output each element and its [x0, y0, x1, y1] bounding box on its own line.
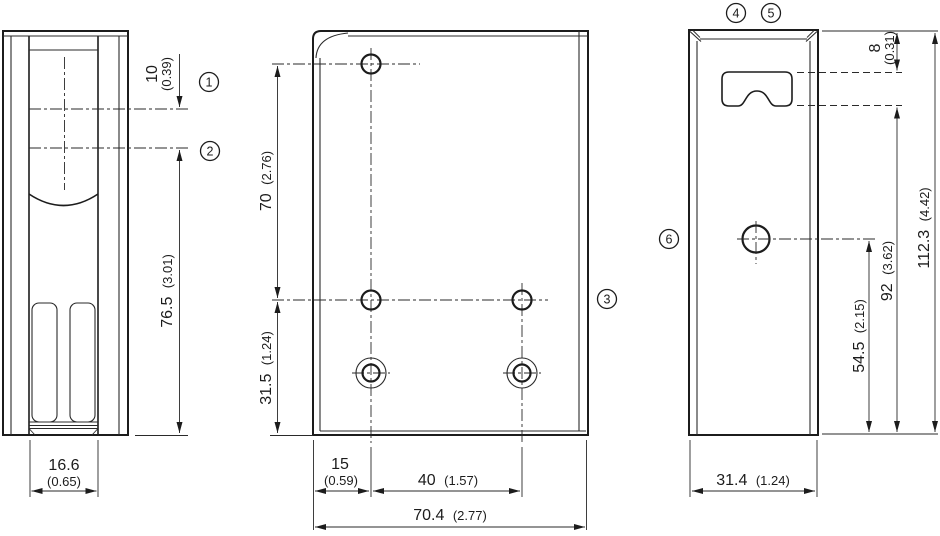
svg-text:112.3 (4.42): 112.3 (4.42) [916, 187, 933, 268]
callout-5: 5 [762, 4, 781, 23]
drawing-page: 10 (0.39) 76.5 (3.01) 16.6 (0.65) 1 2 [0, 0, 940, 531]
side-view-outline [3, 31, 128, 435]
svg-text:54.5 (2.15): 54.5 (2.15) [851, 299, 868, 373]
dim-profile-hole-bottom-in: (2.15) [852, 299, 867, 333]
dim-profile-hole-bottom-mm: 54.5 [851, 342, 868, 373]
svg-text:31.4 (1.24): 31.4 (1.24) [716, 472, 790, 489]
dim-front-spacing-h-in: (1.57) [444, 473, 478, 488]
dim-front-hole-bottom-mm: 31.5 [258, 374, 275, 405]
dim-front-spacing-v-mm: 70 [258, 193, 275, 211]
dim-profile-height: 112.3 (4.42) [916, 33, 935, 432]
callout-6: 6 [660, 230, 679, 249]
front-view: 70 (2.76) 31.5 (1.24) 15 (0.59) [258, 31, 617, 530]
dim-front-spacing-v-in: (2.76) [259, 151, 274, 185]
callout-2: 2 [201, 142, 220, 161]
callout-6-label: 6 [666, 233, 673, 247]
side-view-window-arc [29, 194, 98, 206]
dim-front-hole-spacing-v: 70 (2.76) [258, 66, 278, 298]
clamp-slot [722, 72, 792, 106]
svg-text:92 (3.62): 92 (3.62) [879, 241, 896, 301]
dim-side-height-mm: 76.5 [159, 297, 176, 328]
corner-radius-arc [316, 33, 348, 58]
callout-3-label: 3 [604, 293, 611, 307]
drawing-canvas: 10 (0.39) 76.5 (3.01) 16.6 (0.65) 1 2 [0, 0, 940, 531]
front-view-outline [313, 31, 588, 435]
dim-side-height: 76.5 (3.01) [135, 150, 188, 436]
dim-profile-slot-top: 8 (0.31) [867, 31, 897, 70]
callout-1: 1 [200, 73, 219, 92]
dim-profile-hole-bottom: 54.5 (2.15) [851, 241, 869, 432]
svg-text:31.5 (1.24): 31.5 (1.24) [258, 331, 275, 405]
callout-1-label: 1 [206, 76, 213, 90]
callout-2-label: 2 [207, 145, 214, 159]
side-view-base-lines [29, 422, 98, 435]
dim-profile-width-mm: 31.4 [716, 472, 747, 489]
callout-3: 3 [598, 290, 617, 309]
dim-profile-slot-bottom-mm: 92 [879, 283, 896, 301]
dim-profile-width: 31.4 (1.24) [690, 440, 817, 497]
dim-front-hole-left-in: (0.59) [324, 473, 358, 488]
dim-profile-height-mm: 112.3 [916, 230, 933, 269]
dim-side-height-in: (3.01) [160, 254, 175, 288]
callout-4-label: 4 [733, 7, 740, 21]
dim-front-spacing-h-mm: 40 [418, 472, 436, 489]
dim-side-width-mm: 16.6 [48, 457, 79, 474]
dim-side-width-in: (0.65) [47, 474, 81, 489]
dim-front-hole-left-mm: 15 [331, 456, 349, 473]
dim-front-hole-spacing-h: 40 (1.57) [373, 472, 520, 491]
dim-profile-height-in: (4.42) [917, 187, 932, 221]
dim-front-hole-bottom-in: (1.24) [259, 331, 274, 365]
dim-side-offset-in: (0.39) [159, 57, 174, 91]
dim-side-width: 16.6 (0.65) [30, 440, 98, 497]
callout-5-label: 5 [768, 7, 775, 21]
dim-side-offset: 10 (0.39) [144, 54, 180, 107]
side-view-slots [32, 303, 95, 422]
dim-front-width: 70.4 (2.77) [315, 507, 585, 527]
dim-front-hole-left: 15 (0.59) [315, 456, 369, 491]
dim-profile-slot-bottom: 92 (3.62) [879, 108, 897, 433]
side-view: 10 (0.39) 76.5 (3.01) 16.6 (0.65) 1 2 [3, 31, 220, 497]
dim-front-hole-bottom: 31.5 (1.24) [258, 302, 313, 436]
svg-text:76.5 (3.01): 76.5 (3.01) [159, 254, 176, 328]
dim-profile-slot-top-in: (0.31) [882, 31, 897, 65]
callout-4: 4 [727, 4, 746, 23]
svg-text:70.4 (2.77): 70.4 (2.77) [413, 507, 487, 524]
dim-front-width-in: (2.77) [453, 508, 487, 523]
svg-text:70 (2.76): 70 (2.76) [258, 151, 275, 211]
svg-text:40 (1.57): 40 (1.57) [418, 472, 478, 489]
dim-front-width-mm: 70.4 [413, 507, 444, 524]
dim-profile-slot-bottom-in: (3.62) [880, 241, 895, 275]
profile-view: 8 (0.31) 92 (3.62) 54.5 (2.15) 112.3 (4.… [660, 4, 939, 498]
front-view-holes [356, 55, 537, 389]
profile-hole [737, 221, 876, 264]
dim-profile-width-in: (1.24) [756, 473, 790, 488]
